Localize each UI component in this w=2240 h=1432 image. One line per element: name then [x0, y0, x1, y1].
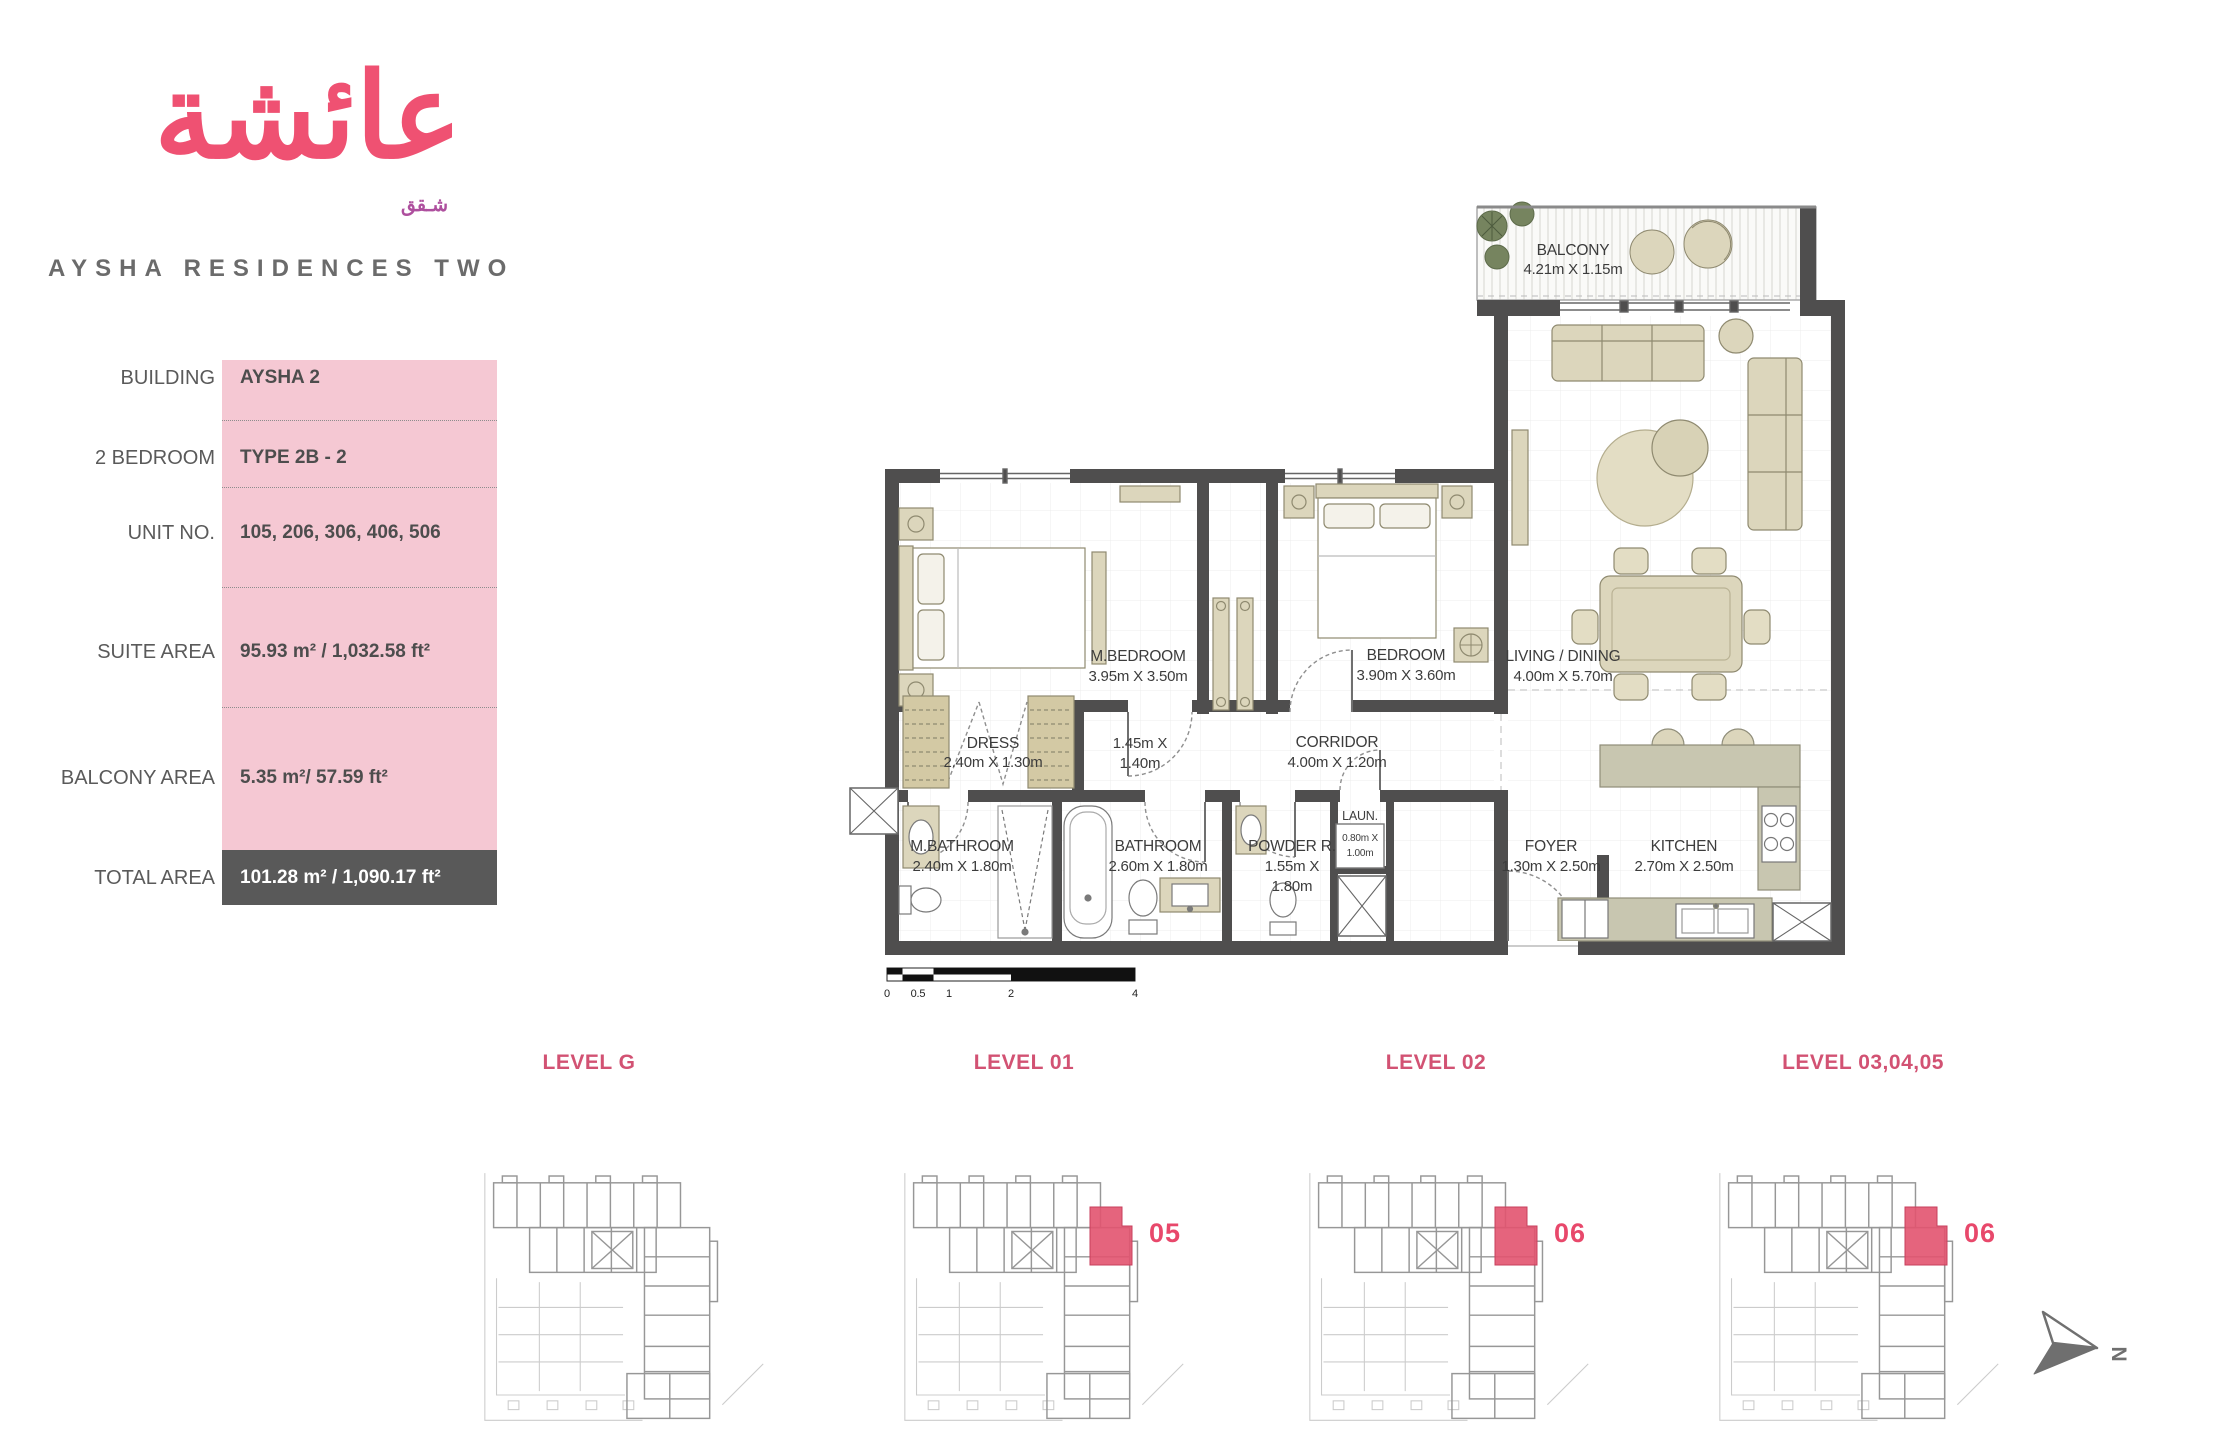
- powder-label: POWDER R.: [1248, 838, 1336, 855]
- brand-logo: عائشة شـقق: [80, 52, 462, 182]
- laundry-dims-2: 1.00m: [1347, 848, 1374, 859]
- highlighted-unit: [1495, 1207, 1537, 1265]
- row-separator: [222, 487, 497, 488]
- kitchen-label: KITCHEN: [1651, 838, 1718, 855]
- north-label: N: [2107, 1347, 2130, 1362]
- scale-tick: 2: [1008, 988, 1014, 1000]
- row-separator: [222, 420, 497, 421]
- keyplan-level-03-05: 06: [1710, 1140, 2010, 1432]
- unit-badge: 05: [1149, 1218, 1181, 1248]
- powder-dims-1: 1.55m X: [1265, 858, 1320, 875]
- keyplan-level-02: 06: [1300, 1140, 1600, 1432]
- scale-tick: 0.5: [911, 988, 926, 1000]
- hall-dims-1: 1.45m X: [1113, 735, 1168, 752]
- scale-tick: 4: [1132, 988, 1138, 1000]
- m-bathroom-label: M.BATHROOM: [910, 838, 1014, 855]
- scale-tick: 0: [884, 988, 890, 1000]
- living-dims: 4.00m X 5.70m: [1513, 668, 1612, 685]
- unit-badge: 06: [1964, 1218, 1996, 1248]
- info-label-total-area: TOTAL AREA: [0, 866, 215, 890]
- corridor-dims: 4.00m X 1.20m: [1287, 754, 1386, 771]
- info-value-total-area: 101.28 m² / 1,090.17 ft²: [240, 866, 441, 890]
- foyer-dims: 1.30m X 2.50m: [1501, 858, 1600, 875]
- info-label-bedroom-type: 2 BEDROOM: [0, 446, 215, 470]
- entrance-opening: [1508, 941, 1578, 955]
- m-bathroom-dims: 2.40m X 1.80m: [912, 858, 1011, 875]
- highlighted-unit: [1905, 1207, 1947, 1265]
- dress-dims: 2.40m X 1.30m: [943, 754, 1042, 771]
- bathroom-label: BATHROOM: [1115, 838, 1202, 855]
- bathroom-dims: 2.60m X 1.80m: [1108, 858, 1207, 875]
- info-value-balcony-area: 5.35 m²/ 57.59 ft²: [240, 766, 388, 790]
- balcony-dims: 4.21m X 1.15m: [1523, 261, 1622, 278]
- row-separator: [222, 707, 497, 708]
- foyer-label: FOYER: [1525, 838, 1577, 855]
- level-01-label: LEVEL 01: [914, 1051, 1134, 1075]
- dress-label: DRESS: [967, 735, 1019, 752]
- scale-bar: 0 0.5 1 2 4: [884, 968, 1138, 1000]
- info-value-building: AYSHA 2: [240, 366, 320, 390]
- info-label-building: BUILDING: [0, 366, 215, 390]
- laundry-washer: [1336, 824, 1384, 868]
- bedroom-dims: 3.90m X 3.60m: [1356, 667, 1455, 684]
- m-bedroom-dims: 3.95m X 3.50m: [1088, 668, 1187, 685]
- floor-plan: BALCONY 4.21m X 1.15m M.BEDROOM 3.95m X …: [845, 200, 1845, 1000]
- laundry-label: LAUN.: [1342, 809, 1378, 823]
- info-label-unit-no: UNIT NO.: [0, 521, 215, 545]
- info-label-suite-area: SUITE AREA: [0, 640, 215, 664]
- laundry-dims-1: 0.80m X: [1342, 833, 1378, 844]
- level-02-label: LEVEL 02: [1326, 1051, 1546, 1075]
- balcony-label: BALCONY: [1537, 242, 1610, 259]
- hall-dims-2: 1.40m: [1120, 755, 1161, 772]
- m-bedroom-label: M.BEDROOM: [1090, 648, 1186, 665]
- page-title: AYSHA RESIDENCES TWO: [48, 255, 514, 283]
- living-label: LIVING / DINING: [1506, 648, 1621, 665]
- corridor-label: CORRIDOR: [1296, 734, 1379, 751]
- unit-badge: 06: [1554, 1218, 1586, 1248]
- info-value-bedroom-type: TYPE 2B - 2: [240, 446, 347, 470]
- info-label-balcony-area: BALCONY AREA: [0, 766, 215, 790]
- info-value-suite-area: 95.93 m² / 1,032.58 ft²: [240, 640, 430, 664]
- north-arrow-icon: N: [2010, 1290, 2150, 1410]
- level-03-05-label: LEVEL 03,04,05: [1753, 1051, 1973, 1075]
- balcony-table: [1630, 230, 1674, 274]
- level-g-label: LEVEL G: [479, 1051, 699, 1075]
- info-value-unit-no: 105, 206, 306, 406, 506: [240, 521, 441, 545]
- brand-logo-arabic-sub: شـقق: [401, 194, 448, 217]
- balcony-chair: [1684, 220, 1732, 268]
- scale-tick: 1: [946, 988, 952, 1000]
- bedroom-label: BEDROOM: [1367, 647, 1446, 664]
- highlighted-unit: [1090, 1207, 1132, 1265]
- row-separator: [222, 587, 497, 588]
- kitchen-dims: 2.70m X 2.50m: [1634, 858, 1733, 875]
- keyplan-level-01: 05: [895, 1140, 1195, 1432]
- powder-dims-2: 1.80m: [1272, 878, 1313, 895]
- brand-logo-arabic: عائشة: [80, 52, 462, 182]
- keyplan-level-g: [475, 1140, 775, 1432]
